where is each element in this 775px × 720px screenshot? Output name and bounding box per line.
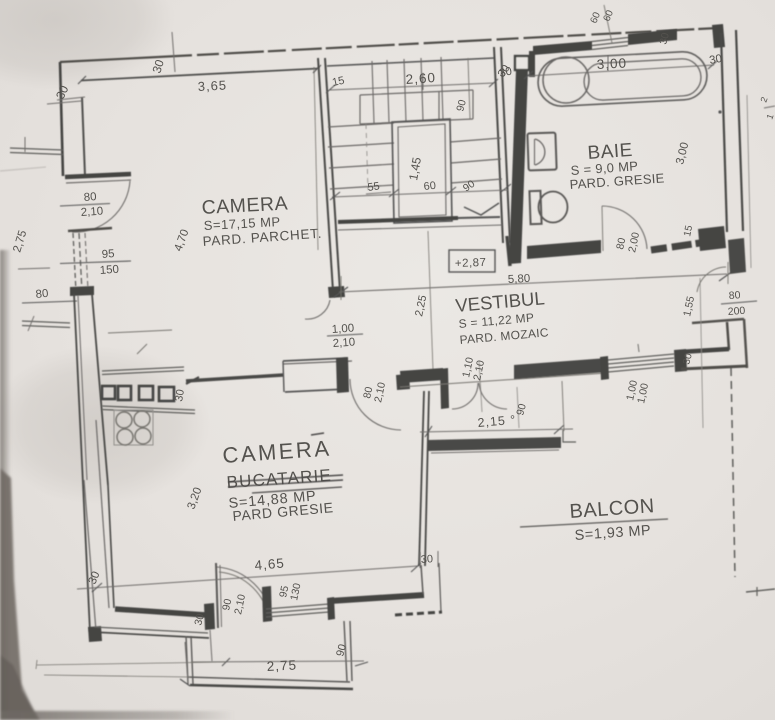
svg-text:80: 80 [35, 288, 49, 301]
svg-text:3,00: 3,00 [596, 55, 627, 72]
svg-text:5,80: 5,80 [508, 273, 531, 286]
svg-text:30: 30 [173, 388, 187, 402]
svg-text:2,10: 2,10 [332, 336, 355, 350]
svg-text:+2,87: +2,87 [455, 257, 487, 270]
svg-text:4,65: 4,65 [254, 555, 285, 573]
svg-text:80: 80 [83, 191, 97, 204]
svg-text:30: 30 [420, 553, 433, 566]
svg-text:60: 60 [423, 180, 436, 193]
svg-text:200: 200 [727, 305, 745, 318]
svg-text:30: 30 [708, 53, 723, 67]
svg-text:3,65: 3,65 [197, 77, 227, 94]
svg-text:2,10: 2,10 [80, 205, 103, 219]
svg-text:2,60: 2,60 [405, 70, 436, 87]
svg-text:150: 150 [99, 264, 119, 277]
svg-text:95: 95 [101, 248, 115, 261]
svg-text:15: 15 [331, 75, 345, 89]
svg-text:2,75: 2,75 [266, 657, 297, 674]
svg-text:55: 55 [367, 180, 381, 194]
svg-text:1,00: 1,00 [331, 322, 354, 336]
svg-text:80: 80 [728, 289, 741, 302]
